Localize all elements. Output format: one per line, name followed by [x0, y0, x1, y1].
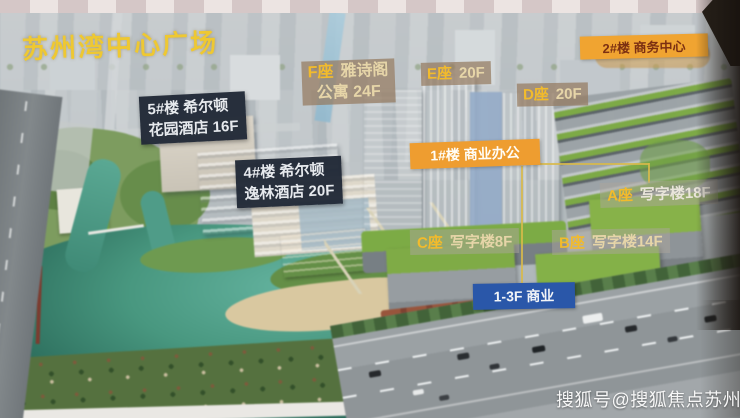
- label-tower-c: C座写字楼8F: [410, 228, 520, 255]
- leader-line: [521, 166, 523, 286]
- block-floors: 20F: [459, 64, 485, 82]
- block-name: C座: [417, 234, 443, 251]
- photo-of-rendering: 苏州湾中心广场 5#楼 希尔顿 花园酒店 16F 4#楼 希尔顿 逸林酒店 20…: [0, 0, 740, 418]
- annotation-layer: 苏州湾中心广场 5#楼 希尔顿 花园酒店 16F 4#楼 希尔顿 逸林酒店 20…: [0, 0, 740, 418]
- label-tower-f: F座雅诗阁 公寓 24F: [301, 58, 395, 105]
- block-desc: 雅诗阁: [340, 62, 389, 81]
- label-building-1: 1#楼 商业办公: [410, 139, 541, 170]
- project-title: 苏州湾中心广场: [21, 23, 218, 67]
- leader-line: [648, 163, 650, 183]
- block-name: D座: [523, 86, 549, 103]
- block-floors: 20F: [556, 85, 582, 102]
- label-line: 花园酒店 16F: [148, 116, 239, 142]
- label-retail-floors: 1-3F 商业: [473, 282, 575, 310]
- label-line: F座雅诗阁: [307, 60, 388, 84]
- block-name: F座: [307, 64, 333, 82]
- block-name: B座: [559, 234, 585, 251]
- label-hotel-4: 4#楼 希尔顿 逸林酒店 20F: [235, 156, 343, 209]
- block-desc: 写字楼18F: [640, 184, 711, 203]
- sohu-watermark: 搜狐号@搜狐焦点苏州站: [556, 386, 740, 412]
- label-tower-a: A座写字楼18F: [600, 179, 719, 208]
- label-line: 逸林酒店 20F: [244, 180, 335, 205]
- label-line: 公寓 24F: [308, 81, 389, 105]
- label-tower-d: D座20F: [517, 82, 588, 106]
- block-name: E座: [427, 65, 452, 83]
- label-tower-e: E座20F: [421, 61, 491, 86]
- label-tower-b: B座写字楼14F: [552, 228, 670, 255]
- block-name: A座: [607, 187, 633, 205]
- label-hotel-5: 5#楼 希尔顿 花园酒店 16F: [139, 91, 247, 144]
- block-desc: 写字楼8F: [450, 233, 513, 251]
- label-building-2: 2#楼 商务中心: [580, 33, 709, 59]
- block-desc: 写字楼14F: [592, 233, 663, 251]
